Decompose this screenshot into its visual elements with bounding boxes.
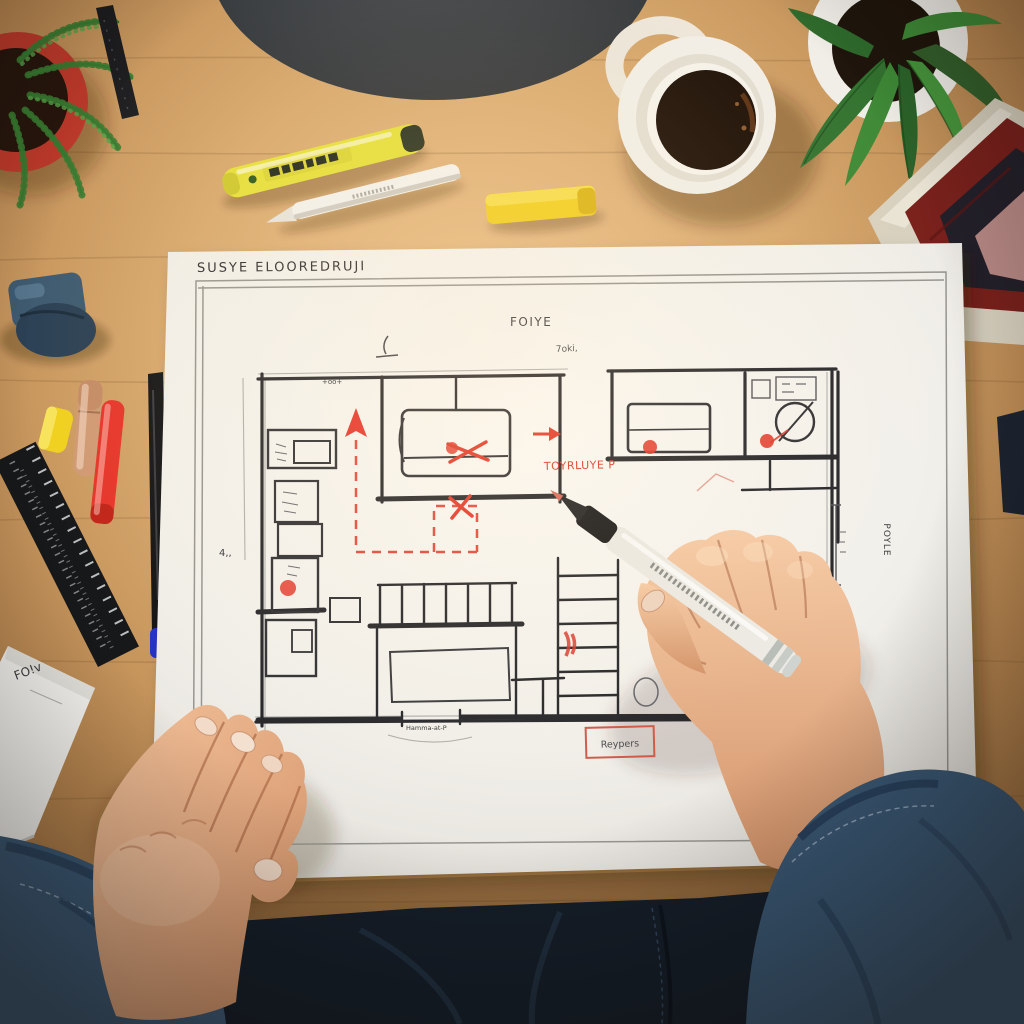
scene-canvas: FO!v SUSYE ELOOREDRUJI FOIYE 7oki, +oo+ … [0,0,1024,1024]
desk-scene-photo: FO!v SUSYE ELOOREDRUJI FOIYE 7oki, +oo+ … [0,0,1024,1024]
vignette-overlay [0,0,1024,1024]
